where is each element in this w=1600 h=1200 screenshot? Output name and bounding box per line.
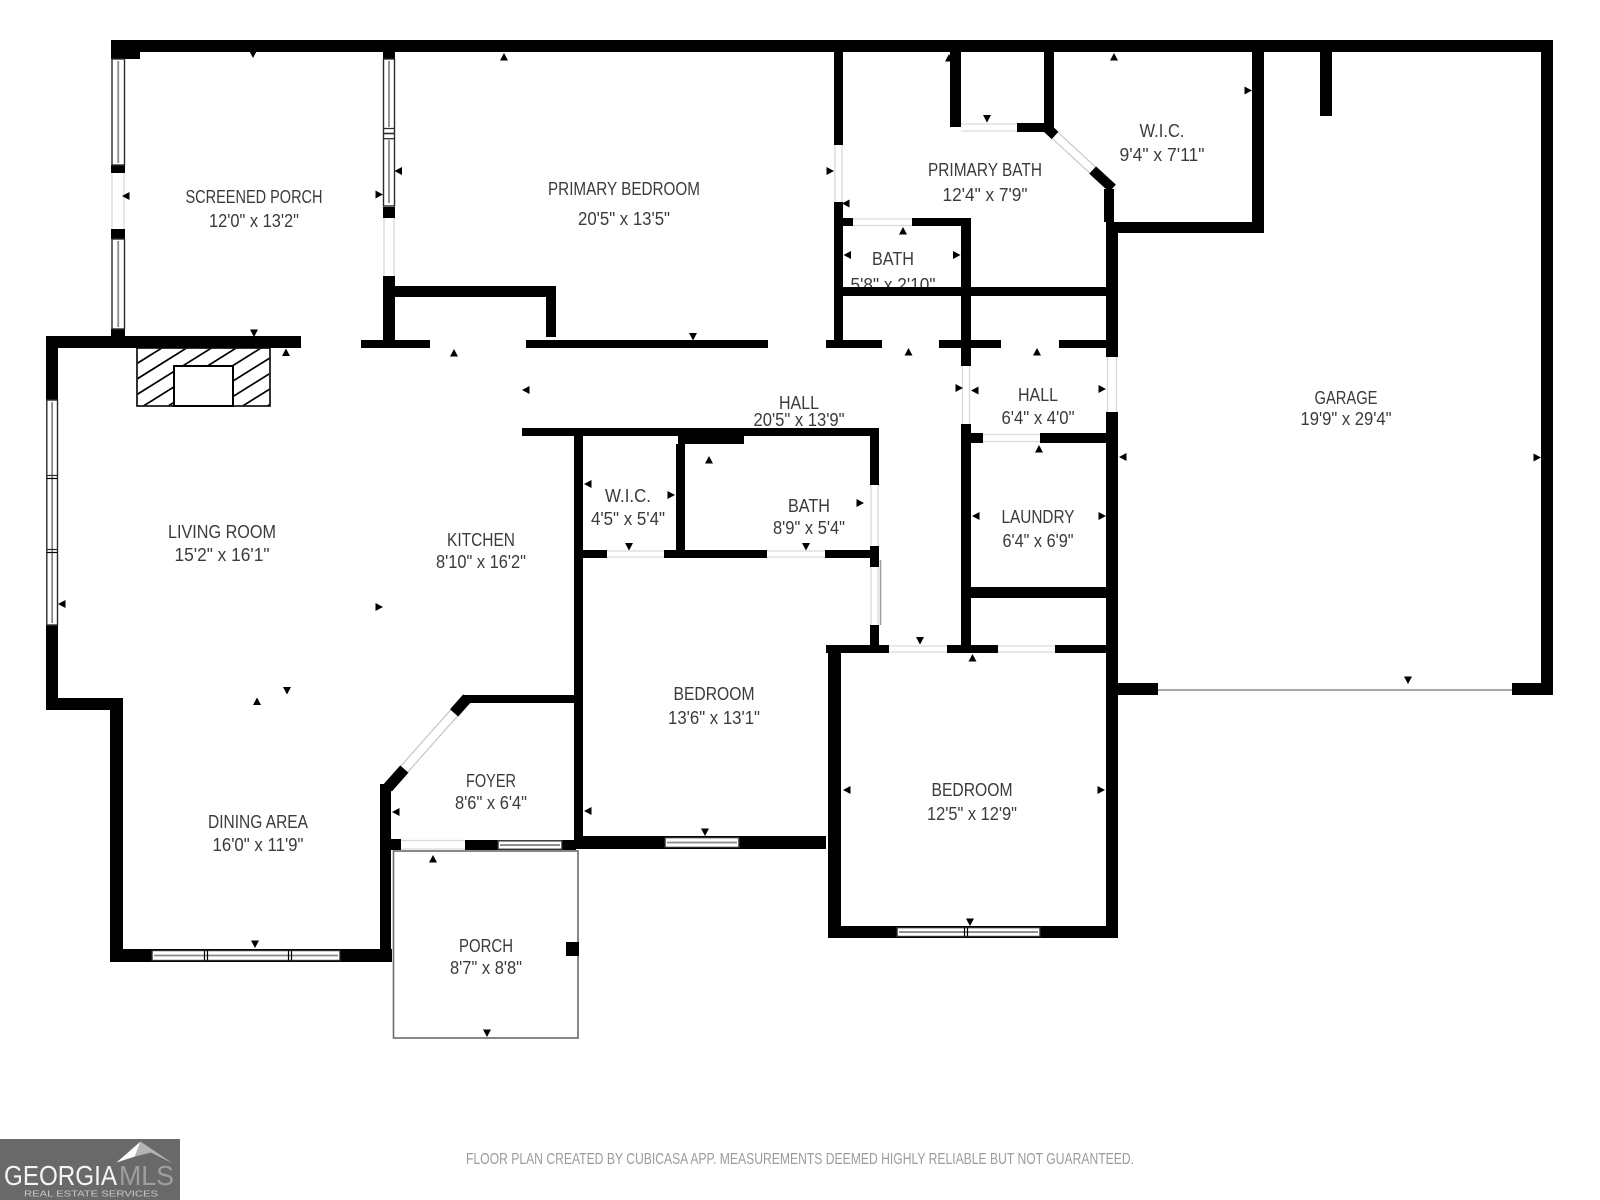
svg-text:FOYER: FOYER: [466, 770, 516, 791]
svg-text:8'7" x 8'8": 8'7" x 8'8": [450, 957, 522, 978]
svg-text:8'6" x 6'4": 8'6" x 6'4": [455, 792, 527, 813]
svg-text:GARAGE: GARAGE: [1315, 387, 1378, 408]
svg-text:15'2" x 16'1": 15'2" x 16'1": [175, 544, 270, 565]
svg-text:12'4" x 7'9": 12'4" x 7'9": [943, 184, 1028, 205]
svg-text:20'5" x 13'5": 20'5" x 13'5": [578, 208, 670, 229]
svg-text:SCREENED PORCH: SCREENED PORCH: [186, 186, 323, 207]
svg-text:W.I.C.: W.I.C.: [1140, 120, 1185, 141]
svg-text:REAL ESTATE SERVICES: REAL ESTATE SERVICES: [24, 1189, 158, 1199]
svg-text:20'5" x 13'9": 20'5" x 13'9": [754, 409, 845, 430]
svg-text:4'5" x 5'4": 4'5" x 5'4": [591, 508, 665, 529]
svg-text:GEORGIA: GEORGIA: [4, 1160, 118, 1191]
svg-text:LAUNDRY: LAUNDRY: [1002, 506, 1075, 527]
svg-text:13'6" x 13'1": 13'6" x 13'1": [668, 707, 760, 728]
svg-text:8'9" x 5'4": 8'9" x 5'4": [773, 517, 845, 538]
svg-text:LIVING ROOM: LIVING ROOM: [168, 521, 276, 542]
svg-text:12'0" x 13'2": 12'0" x 13'2": [209, 210, 299, 231]
svg-text:BEDROOM: BEDROOM: [674, 683, 755, 704]
svg-text:PORCH: PORCH: [459, 935, 513, 956]
svg-text:12'5" x 12'9": 12'5" x 12'9": [927, 803, 1017, 824]
svg-text:BEDROOM: BEDROOM: [932, 779, 1013, 800]
svg-text:16'0" x 11'9": 16'0" x 11'9": [213, 834, 304, 855]
svg-text:PRIMARY BATH: PRIMARY BATH: [928, 159, 1042, 180]
svg-text:MLS: MLS: [119, 1160, 174, 1191]
svg-text:FLOOR PLAN CREATED BY CUBICASA: FLOOR PLAN CREATED BY CUBICASA APP. MEAS…: [466, 1151, 1134, 1168]
svg-text:8'10" x 16'2": 8'10" x 16'2": [436, 551, 526, 572]
svg-text:19'9" x 29'4": 19'9" x 29'4": [1301, 408, 1392, 429]
svg-text:BATH: BATH: [872, 248, 914, 269]
svg-text:W.I.C.: W.I.C.: [605, 485, 651, 506]
svg-text:BATH: BATH: [788, 495, 830, 516]
svg-text:HALL: HALL: [1018, 384, 1058, 405]
svg-text:KITCHEN: KITCHEN: [447, 529, 515, 550]
svg-text:6'4" x 4'0": 6'4" x 4'0": [1002, 407, 1075, 428]
svg-text:6'4" x 6'9": 6'4" x 6'9": [1003, 530, 1074, 551]
svg-text:DINING AREA: DINING AREA: [208, 811, 309, 832]
svg-text:PRIMARY BEDROOM: PRIMARY BEDROOM: [548, 178, 700, 199]
svg-text:9'4" x 7'11": 9'4" x 7'11": [1120, 144, 1205, 165]
